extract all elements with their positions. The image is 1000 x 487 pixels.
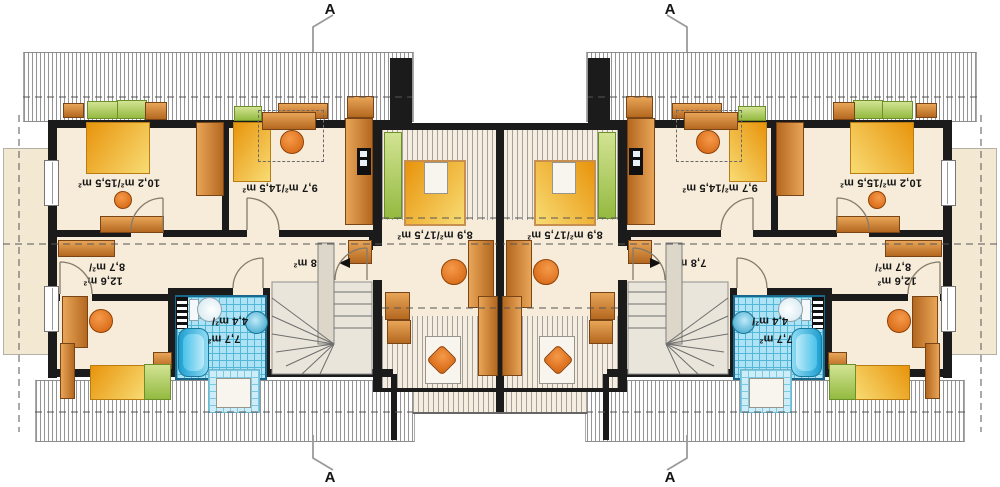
bed xyxy=(854,365,910,400)
wardrobe xyxy=(833,102,855,120)
wardrobe-green xyxy=(738,106,766,121)
room-area-label: 7,7 m² xyxy=(746,332,806,345)
hall-direction-arrow-icon xyxy=(650,258,661,268)
room-area-label: 9,7 m²/14,5 m² xyxy=(665,181,775,194)
door-gap-center-room xyxy=(618,246,627,280)
stairs-direction-arrow-icon xyxy=(636,319,654,334)
chimney-stub-top xyxy=(588,58,610,124)
sideboard xyxy=(885,240,942,257)
wall-stub-bottom xyxy=(603,374,609,440)
cabinet xyxy=(628,240,652,264)
wardrobe-green xyxy=(853,100,883,119)
window-left-lower xyxy=(941,286,956,332)
room-area-label: 2,1 m² xyxy=(643,349,695,362)
pouf-icon xyxy=(868,191,886,209)
wardrobe-green xyxy=(598,132,616,219)
floor-plan: 10,2 m²/15,5 m² 9,7 m²/14,5 m² 8,9 m²/17… xyxy=(0,0,1000,487)
wardrobe-tall xyxy=(502,296,522,376)
section-marker-a-top: A xyxy=(660,1,680,18)
wall-exterior-left xyxy=(943,120,952,378)
desk xyxy=(912,296,938,348)
tv-icon xyxy=(629,148,643,175)
door-gap-bathroom xyxy=(737,288,767,295)
bed-pillow xyxy=(552,162,576,194)
half-right: 10,2 m²/15,5 m² 9,7 m²/14,5 m² 8,9 m²/17… xyxy=(0,0,1000,487)
room-area-label: 4,4 m²/ xyxy=(740,314,800,327)
center-eave-hatch xyxy=(500,390,587,414)
room-area-label: 7,8 m² xyxy=(662,256,718,269)
radiator-icon xyxy=(812,297,824,329)
shower-mat xyxy=(749,378,784,408)
desk xyxy=(836,216,900,233)
room-area-label: 12,6 m² xyxy=(862,274,932,287)
wall-center-top xyxy=(500,123,618,130)
chair-icon xyxy=(696,130,720,154)
bed-pillow-green xyxy=(829,364,856,400)
room-area-label: 8,7 m²/ xyxy=(858,260,928,273)
chair-icon xyxy=(887,309,911,333)
wardrobe xyxy=(916,103,937,118)
wardrobe-tall xyxy=(776,122,804,196)
wall-center-bottom xyxy=(503,388,618,392)
bed xyxy=(850,122,914,174)
wardrobe-tall xyxy=(925,343,940,399)
section-marker-a-bottom: A xyxy=(660,469,680,486)
cabinet xyxy=(589,320,613,344)
room-area-label: 10,2 m²/15,5 m² xyxy=(814,176,948,189)
gable-eave-strip xyxy=(950,148,997,355)
cabinet xyxy=(626,96,653,118)
door-gap-bedroom-mid xyxy=(721,230,753,237)
room-area-label: 8,9 m²/17,5 m² xyxy=(518,228,612,241)
desk xyxy=(684,112,738,130)
cabinet xyxy=(590,292,615,320)
wardrobe-green xyxy=(881,101,913,119)
chair-icon xyxy=(533,259,559,285)
